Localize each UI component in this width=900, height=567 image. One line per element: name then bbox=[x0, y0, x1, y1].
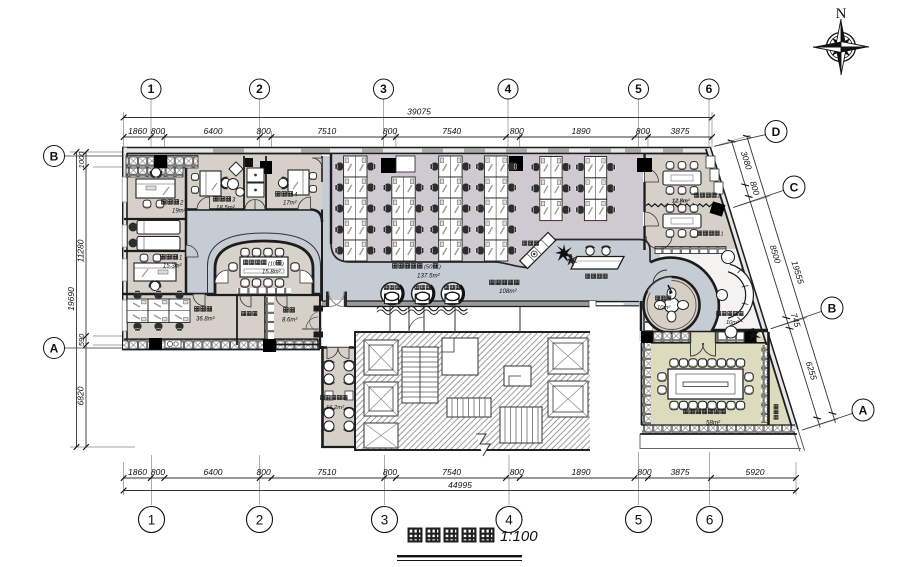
svg-text:590: 590 bbox=[77, 333, 86, 346]
svg-text:2: 2 bbox=[717, 194, 721, 200]
svg-text:800: 800 bbox=[637, 467, 651, 477]
svg-text:1: 1 bbox=[148, 82, 155, 96]
svg-text:800: 800 bbox=[510, 126, 524, 136]
svg-text:2: 2 bbox=[179, 201, 184, 207]
svg-text:3875: 3875 bbox=[671, 126, 690, 136]
svg-text:1: 1 bbox=[179, 256, 182, 262]
svg-text:6400: 6400 bbox=[204, 467, 223, 477]
svg-text:19690: 19690 bbox=[66, 287, 76, 311]
svg-text:39075: 39075 bbox=[407, 107, 431, 117]
svg-text:1860: 1860 bbox=[128, 126, 147, 136]
svg-text:5920: 5920 bbox=[746, 467, 765, 477]
svg-text:1000: 1000 bbox=[77, 151, 86, 169]
svg-text:10m²: 10m² bbox=[726, 320, 740, 326]
svg-text:(10: (10 bbox=[268, 261, 277, 267]
svg-text:7540: 7540 bbox=[442, 126, 461, 136]
svg-text:6820: 6820 bbox=[76, 386, 86, 405]
svg-text:3: 3 bbox=[381, 513, 389, 528]
svg-text:800: 800 bbox=[383, 126, 397, 136]
svg-text:800: 800 bbox=[151, 467, 165, 477]
svg-text:10m²: 10m² bbox=[657, 305, 671, 311]
svg-text:58m²: 58m² bbox=[706, 420, 721, 427]
svg-text:800: 800 bbox=[510, 467, 524, 477]
svg-text:A: A bbox=[50, 342, 59, 356]
svg-text:7510: 7510 bbox=[317, 126, 336, 136]
svg-text:8.6m²: 8.6m² bbox=[282, 318, 298, 324]
svg-text:44995: 44995 bbox=[448, 480, 472, 490]
svg-text:7510: 7510 bbox=[317, 467, 336, 477]
svg-text:800: 800 bbox=[257, 467, 271, 477]
svg-text:16.2m²: 16.2m² bbox=[326, 405, 345, 411]
svg-text:3875: 3875 bbox=[671, 467, 690, 477]
svg-text:): ) bbox=[281, 261, 284, 267]
svg-text:800: 800 bbox=[636, 126, 650, 136]
svg-text:1890: 1890 bbox=[572, 126, 591, 136]
svg-text:4: 4 bbox=[505, 513, 513, 528]
svg-text:6400: 6400 bbox=[204, 126, 223, 136]
svg-text:2: 2 bbox=[256, 82, 263, 96]
svg-text:C: C bbox=[790, 181, 799, 195]
svg-text:800: 800 bbox=[383, 467, 397, 477]
svg-text:2: 2 bbox=[256, 513, 264, 528]
svg-text:6: 6 bbox=[706, 513, 714, 528]
svg-text:5: 5 bbox=[635, 513, 643, 528]
svg-text:7540: 7540 bbox=[442, 467, 461, 477]
svg-text:4: 4 bbox=[505, 82, 512, 96]
svg-text:): ) bbox=[438, 265, 441, 271]
svg-text:12.8m²: 12.8m² bbox=[672, 197, 690, 204]
svg-text:19m²: 19m² bbox=[172, 209, 187, 215]
svg-text:108m²: 108m² bbox=[499, 288, 517, 295]
svg-text:D: D bbox=[772, 125, 781, 139]
svg-text:137.5m²: 137.5m² bbox=[417, 272, 441, 279]
svg-text:A: A bbox=[859, 404, 868, 418]
svg-text:5: 5 bbox=[635, 82, 642, 96]
svg-text:800: 800 bbox=[257, 126, 271, 136]
svg-text:11280: 11280 bbox=[76, 239, 86, 262]
svg-text:17m²: 17m² bbox=[283, 201, 298, 207]
svg-text:B: B bbox=[50, 150, 59, 164]
svg-text:15.3m²: 15.3m² bbox=[163, 264, 183, 270]
svg-text:1860: 1860 bbox=[128, 467, 147, 477]
svg-text:N: N bbox=[836, 6, 847, 22]
svg-text:1890: 1890 bbox=[572, 467, 591, 477]
svg-text:1:100: 1:100 bbox=[500, 528, 538, 545]
svg-text:800: 800 bbox=[151, 126, 165, 136]
svg-text:6: 6 bbox=[706, 82, 713, 96]
svg-text:1: 1 bbox=[148, 513, 156, 528]
svg-text:3: 3 bbox=[380, 82, 387, 96]
svg-text:15.8m²: 15.8m² bbox=[262, 270, 282, 276]
svg-text:18.5m²: 18.5m² bbox=[216, 206, 236, 212]
svg-text:36.8m²: 36.8m² bbox=[196, 317, 216, 323]
svg-text:(50: (50 bbox=[424, 265, 433, 271]
svg-text:1: 1 bbox=[721, 232, 724, 238]
svg-text:B: B bbox=[828, 302, 837, 316]
